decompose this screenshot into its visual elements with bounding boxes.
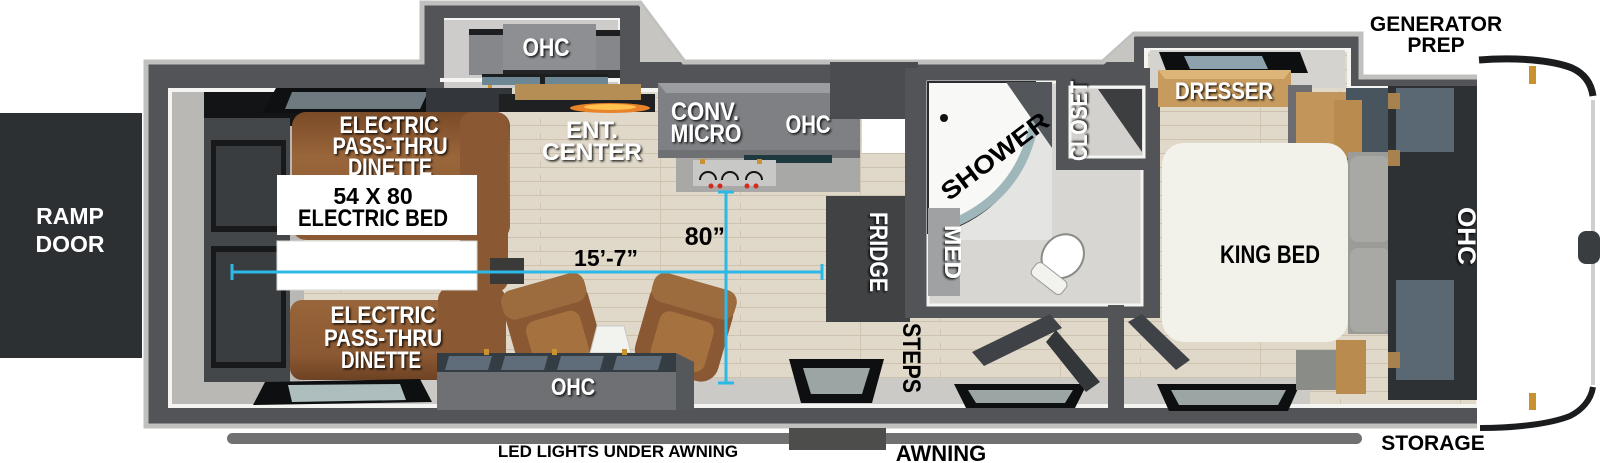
svg-text:STEPS: STEPS <box>897 323 925 393</box>
svg-text:DOOR: DOOR <box>36 231 105 257</box>
svg-text:LED LIGHTS UNDER AWNING: LED LIGHTS UNDER AWNING <box>498 442 738 461</box>
svg-text:CLOSET: CLOSET <box>1066 81 1093 161</box>
svg-text:80”: 80” <box>685 223 725 251</box>
svg-text:DRESSER: DRESSER <box>1175 78 1273 105</box>
svg-text:KING BED: KING BED <box>1220 241 1320 269</box>
svg-text:PREP: PREP <box>1407 34 1464 57</box>
svg-text:GENERATOR: GENERATOR <box>1370 13 1502 36</box>
svg-text:MED: MED <box>940 225 966 279</box>
svg-text:OHC: OHC <box>1452 207 1480 265</box>
svg-text:CENTER: CENTER <box>542 139 642 166</box>
svg-text:DINETTE: DINETTE <box>341 347 421 374</box>
svg-text:FRIDGE: FRIDGE <box>864 212 892 292</box>
svg-text:STORAGE: STORAGE <box>1381 432 1484 455</box>
svg-text:MICRO: MICRO <box>671 120 742 148</box>
svg-text:OHC: OHC <box>786 111 831 139</box>
svg-text:OHC: OHC <box>523 34 570 62</box>
svg-text:OHC: OHC <box>551 374 595 401</box>
svg-text:15’-7”: 15’-7” <box>574 245 638 271</box>
svg-text:RAMP: RAMP <box>36 203 104 229</box>
svg-text:AWNING: AWNING <box>896 441 986 463</box>
svg-text:ELECTRIC BED: ELECTRIC BED <box>298 205 448 232</box>
